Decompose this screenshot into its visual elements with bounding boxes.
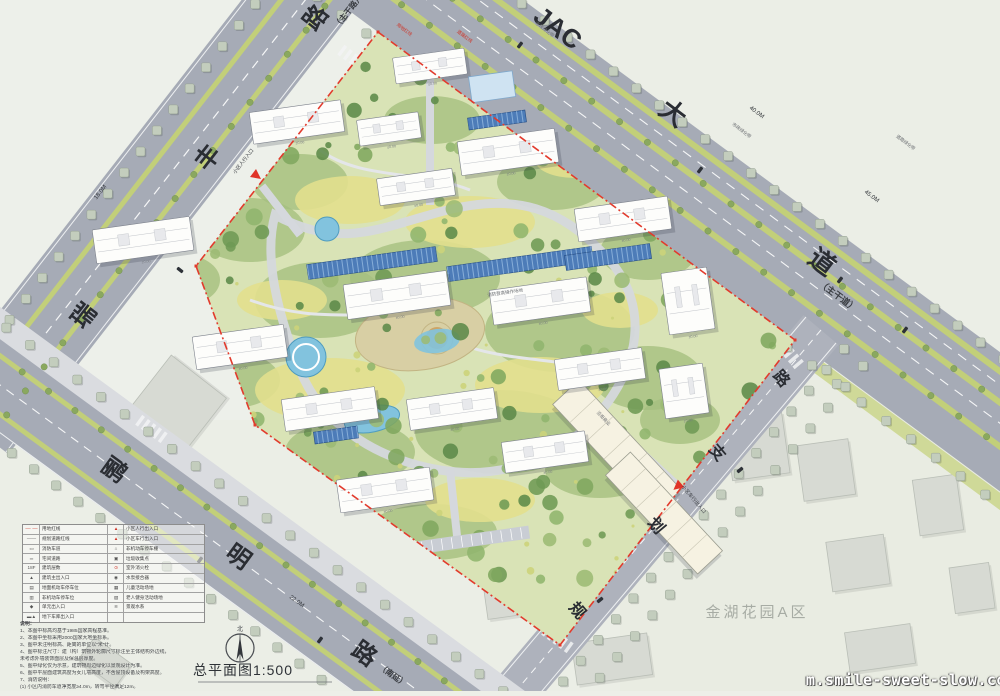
residential-tower: ±0.00 <box>659 363 713 426</box>
note-line: 6、图中平屋面建筑高度为女儿墙高度，不含屋顶设备及构架高度。 <box>20 670 235 677</box>
legend-row: ▭消防车道⌂非机动车停车棚 <box>23 544 204 554</box>
note-line: (1) 小区内消防车道净宽度≥4.0m，转弯半径满足12m。 <box>20 684 235 691</box>
note-line: 5、图中绿化仅为示意，建筑物周边绿化以景观设计为准。 <box>20 663 235 670</box>
note-line: 7、消防说明： <box>20 677 235 684</box>
legend-row: ▤地面机动车停车位▦儿童活动场地 <box>23 583 204 593</box>
neighborhood-label: 金湖花园A区 <box>705 604 808 621</box>
site-plan-stage: ±0.00±0.00±0.00±0.00±0.00±0.00±0.00±0.00… <box>0 0 1000 691</box>
legend-row: —··—用地红线▲小区人行出入口 <box>23 525 204 534</box>
amenity-building <box>469 71 516 103</box>
notes-block: 说明： 1、本图中标高均基于1985国家高程基准。 2、本图中坐标采用2000国… <box>20 621 235 691</box>
legend-row: ▲建筑主出入口◉水泵接合器 <box>23 573 204 583</box>
note-line: 1、本图中标高均基于1985国家高程基准。 <box>20 628 235 635</box>
note-line: 3、图中未注明标高、距离的单位以"米"计。 <box>20 642 235 649</box>
note-line: 4、图中标注尺寸：建（构）筑物外轮廓尺寸标注至主体结构外边线， <box>20 649 235 656</box>
notes-header: 说明： <box>20 621 235 628</box>
legend-row: ——规划道路红线▲小区车行出入口 <box>23 534 204 544</box>
residential-tower: ±0.00 <box>661 267 719 342</box>
legend-row: ═宅间道路▣垃圾收集点 <box>23 553 204 563</box>
north-label: 北 <box>237 625 243 633</box>
legend-symbol: —··— <box>23 525 39 534</box>
legend-row: 18F建筑层数⊙室外消火栓 <box>23 563 204 573</box>
legend-row: ▥非机动车停车位▧老人健身活动场地 <box>23 592 204 602</box>
watermark: m.smile-sweet-slow.co <box>806 671 1000 689</box>
note-line: 2、本图中坐标采用2000国家大地坐标系。 <box>20 635 235 642</box>
legend: —··—用地红线▲小区人行出入口 ——规划道路红线▲小区车行出入口 ▭消防车道⌂… <box>22 524 205 623</box>
legend-row: ◆单元出入口≋景观水系 <box>23 602 204 612</box>
note-line: 未考虑外墙装饰面层及保温层厚度。 <box>20 656 235 663</box>
